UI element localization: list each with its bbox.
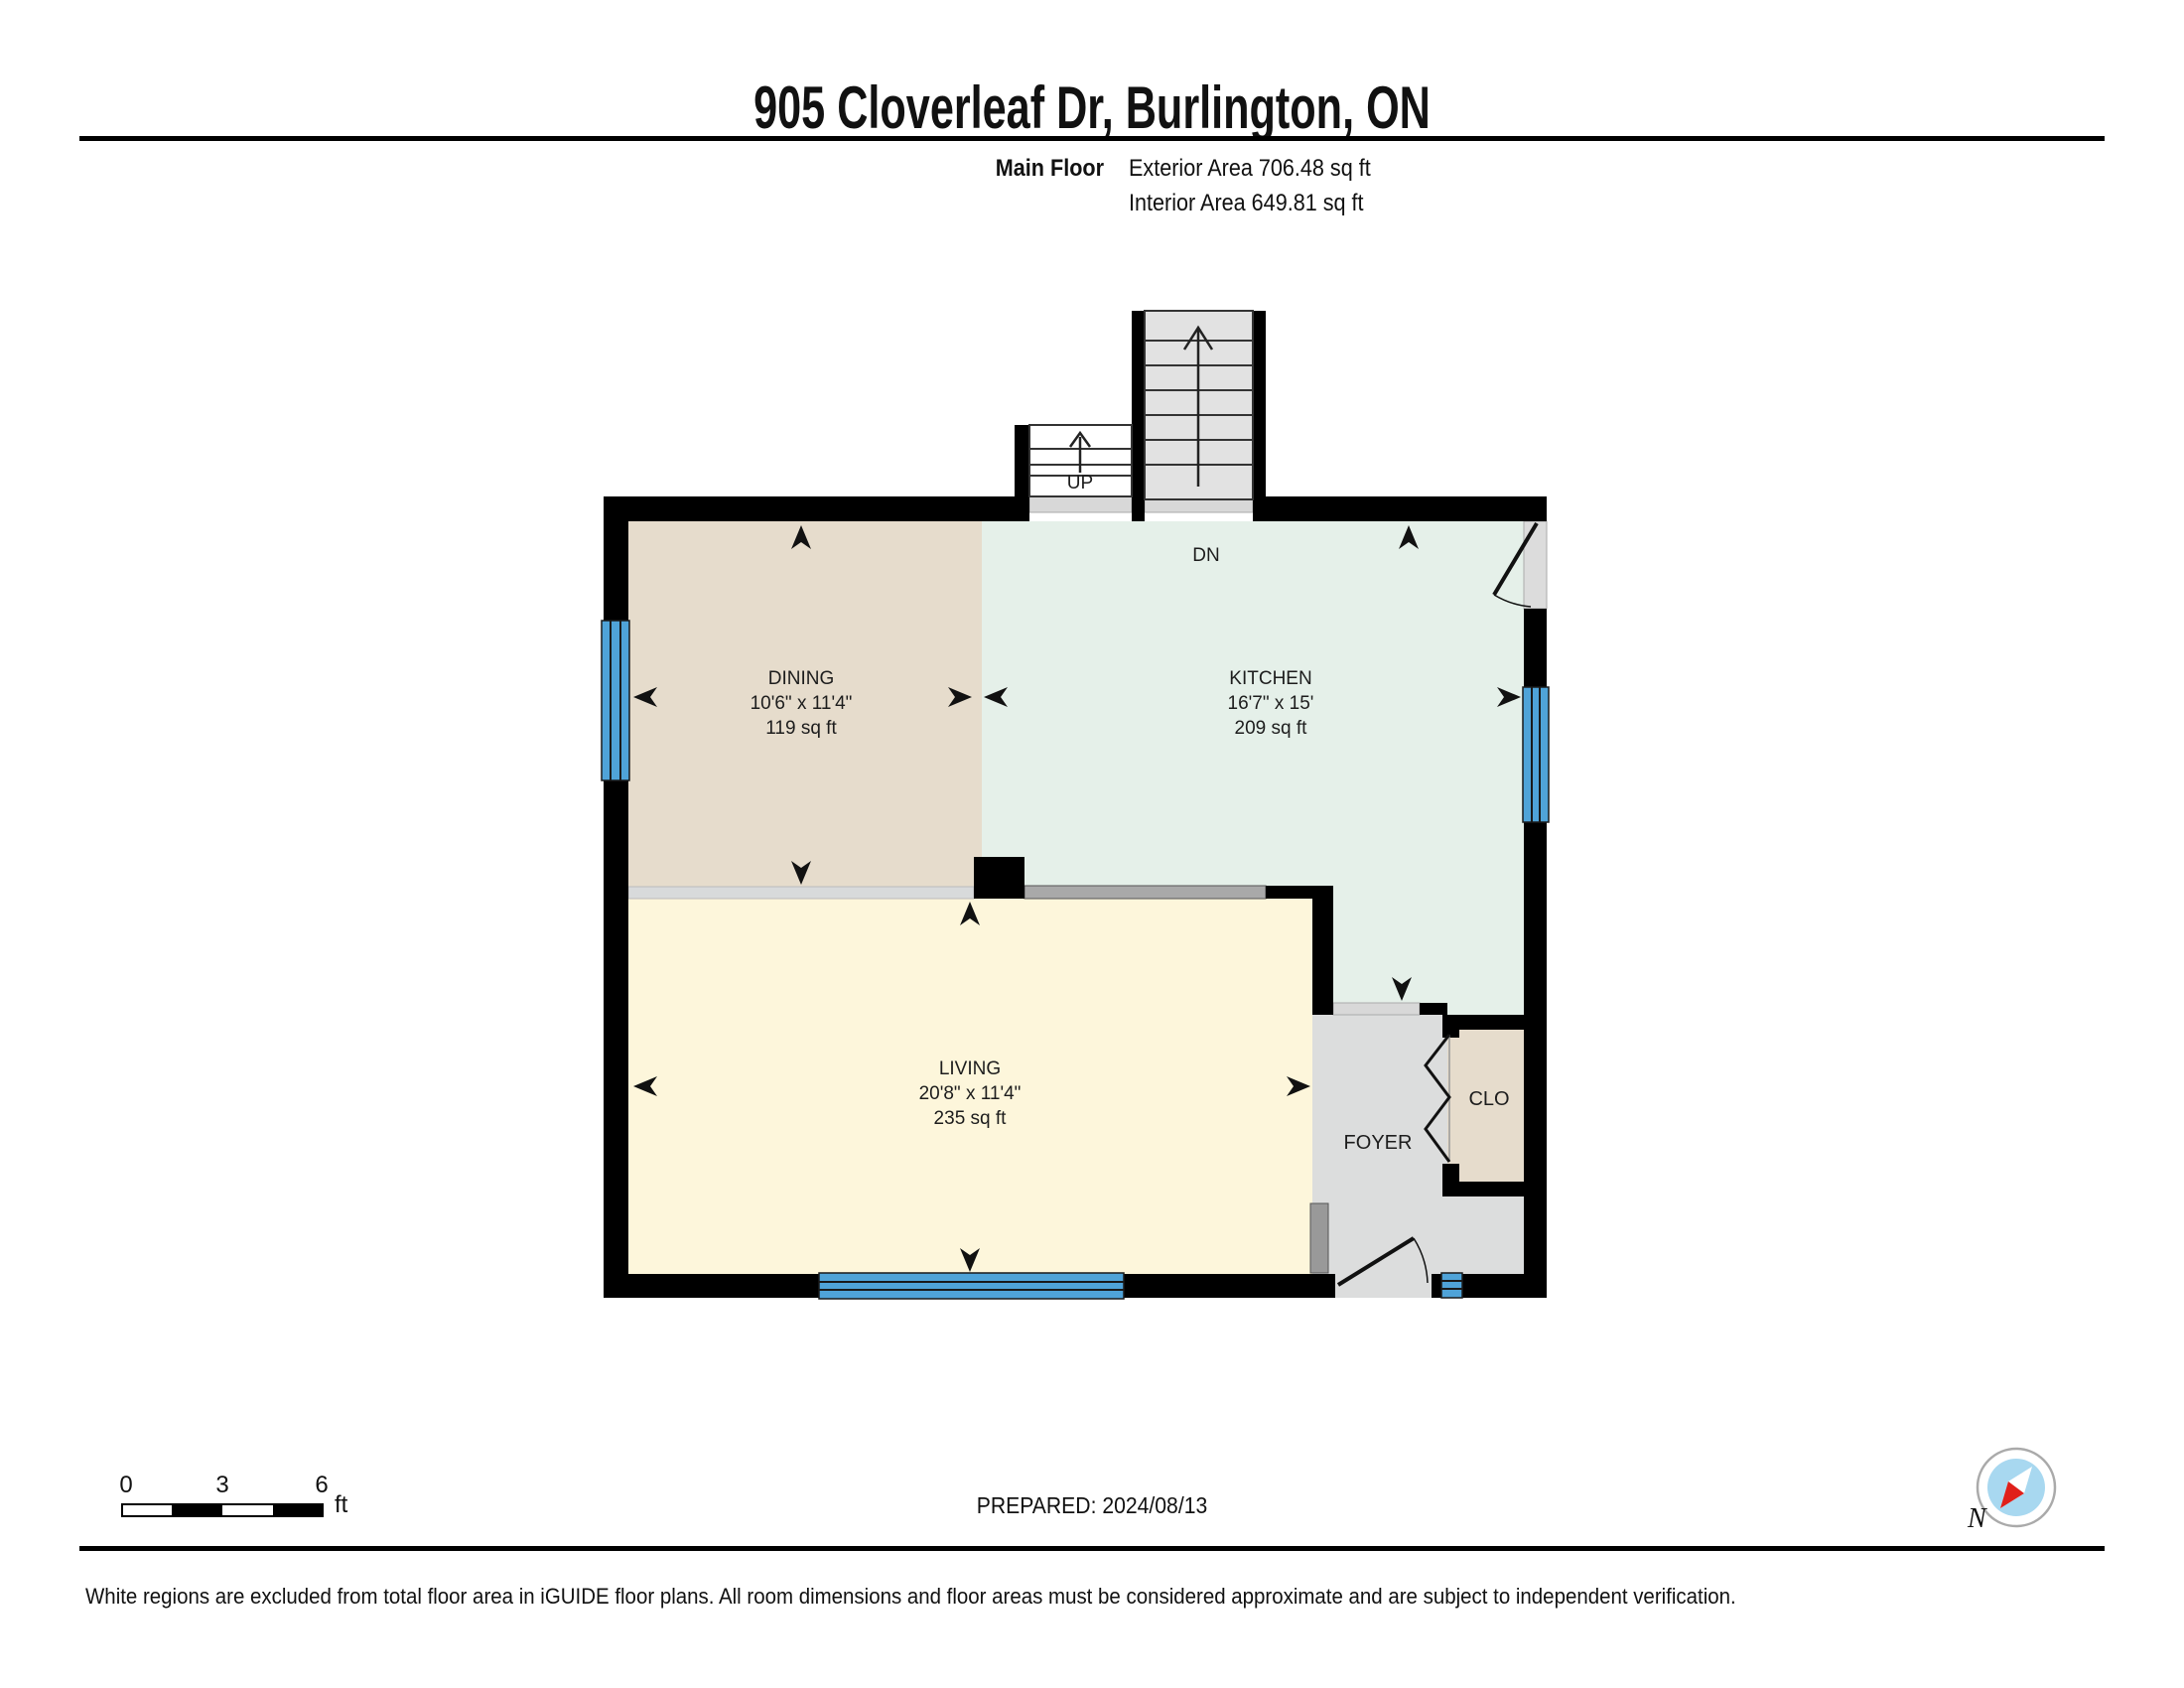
foyer-label: FOYER	[1344, 1132, 1413, 1155]
dining-area: 119 sq ft	[751, 716, 853, 741]
page-title: 905 Cloverleaf Dr, Burlington, ON	[306, 73, 1878, 142]
foyer-floor-lower	[1447, 1196, 1524, 1274]
header-rule	[79, 136, 2105, 141]
dining-dims: 10'6" x 11'4"	[751, 691, 853, 716]
kitchen-area: 209 sq ft	[1228, 716, 1314, 741]
compass-north-label: N	[1968, 1503, 1986, 1535]
entry-sidelight-window	[1441, 1273, 1462, 1298]
living-room-label: LIVING 20'8" x 11'4" 235 sq ft	[919, 1056, 1022, 1131]
kitchen-door-threshold	[1524, 521, 1547, 609]
floorplan-page: 905 Cloverleaf Dr, Burlington, ON Main F…	[0, 0, 2184, 1688]
living-dims: 20'8" x 11'4"	[919, 1081, 1022, 1106]
disclaimer-text: White regions are excluded from total fl…	[85, 1584, 1736, 1610]
kitchen-floor-ext	[1333, 886, 1524, 1015]
foyer-stub-wall	[1310, 1203, 1328, 1273]
footer-rule	[79, 1546, 2105, 1551]
dining-living-divider	[628, 887, 974, 899]
floorplan-drawing	[0, 0, 2184, 1688]
living-right-wall	[1312, 886, 1333, 1015]
living-area: 235 sq ft	[919, 1106, 1022, 1131]
kitchen-counter	[1024, 886, 1266, 899]
closet-bottom-wall	[1442, 1182, 1524, 1196]
dn-stair-right-wall	[1253, 311, 1266, 521]
up-stair-left-wall	[1015, 425, 1029, 521]
dn-stair-left-wall	[1132, 311, 1145, 521]
interior-area-label: Interior Area 649.81 sq ft	[1129, 190, 1364, 217]
up-stair-threshold	[1029, 496, 1132, 512]
up-stair-label: UP	[1067, 473, 1093, 494]
living-window	[819, 1273, 1124, 1299]
kitchen-window	[1523, 687, 1549, 822]
closet-top-wall	[1442, 1015, 1524, 1030]
kitchen-name: KITCHEN	[1228, 666, 1314, 691]
kitchen-dims: 16'7" x 15'	[1228, 691, 1314, 716]
dn-staircase	[1145, 311, 1253, 499]
dining-name: DINING	[751, 666, 853, 691]
closet-door-post-bottom	[1442, 1164, 1459, 1182]
dining-room-label: DINING 10'6" x 11'4" 119 sq ft	[751, 666, 853, 741]
foyer-opening-threshold	[1333, 1003, 1420, 1015]
floor-name-label: Main Floor	[870, 155, 1104, 183]
dining-kitchen-post	[974, 857, 1024, 899]
exterior-area-label: Exterior Area 706.48 sq ft	[1129, 155, 1371, 183]
dn-stair-label: DN	[1192, 545, 1219, 567]
living-name: LIVING	[919, 1056, 1022, 1081]
kitchen-room-label: KITCHEN 16'7" x 15' 209 sq ft	[1228, 666, 1314, 741]
closet-label: CLO	[1468, 1088, 1509, 1111]
prepared-date: PREPARED: 2024/08/13	[87, 1492, 2097, 1519]
closet-door-post-top	[1442, 1030, 1459, 1038]
dining-window	[602, 621, 629, 780]
